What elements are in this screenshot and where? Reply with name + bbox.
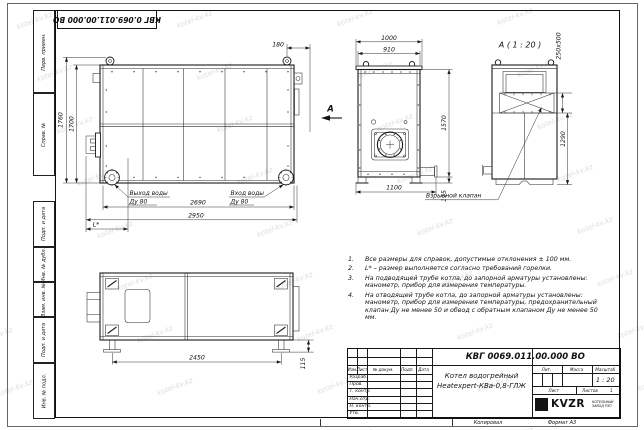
tb-header-list: Лист: [357, 365, 367, 374]
note-number: 4.: [348, 292, 365, 322]
tb-sheets-label: Листов: [576, 386, 604, 394]
tb-divider: [542, 373, 543, 386]
tb-divider: [348, 357, 432, 358]
note-number: 2.: [348, 265, 365, 272]
margin-stamp-perv-primen: Перв. примен.: [33, 10, 55, 93]
note-item: 3. На подводящей трубе котла, до запорно…: [348, 275, 598, 290]
note-text: На отводящей трубе котла, до запорной ар…: [365, 292, 598, 322]
tb-row-prov: Пров.: [348, 381, 367, 388]
note-item: 1. Все размеры для справок, допустимые о…: [348, 256, 598, 263]
tb-divider: [532, 394, 620, 395]
notes-block: 1. Все размеры для справок, допустимые о…: [348, 256, 598, 323]
note-number: 3.: [348, 275, 365, 290]
footer-divider: [320, 419, 321, 426]
margin-stamp-label: Справ. №: [41, 122, 47, 146]
note-text: Все размеры для справок, допустимые откл…: [365, 256, 598, 263]
corner-doc-number-box: КВГ 0.069.011.00.000 ВО: [57, 10, 157, 29]
company-logo-icon: [535, 398, 548, 411]
tb-header-data: Дата: [416, 365, 432, 374]
margin-stamp-label: Подп. и дата: [41, 323, 47, 357]
margin-stamp-podp-data-1: Подп. и дата: [33, 201, 55, 247]
company-name-line2: ЗАВОД РЭП: [592, 404, 613, 408]
tb-mass-label: Масса: [562, 365, 592, 373]
note-item: 2. L* – размер выполняется согласно треб…: [348, 265, 598, 272]
corner-doc-number: КВГ 0.069.011.00.000 ВО: [53, 15, 161, 24]
margin-stamp-label: Взам. инв. №: [41, 283, 47, 317]
tb-lit-label: Лит.: [532, 365, 562, 373]
tb-sheets-value: 1: [604, 386, 619, 394]
company-name: КОТЕЛЬНЫЙ ЗАВОД РЭП: [592, 400, 613, 408]
tb-divider: [400, 349, 401, 417]
tb-divider: [552, 373, 553, 386]
margin-stamp-label: Инв. № дубл.: [41, 247, 47, 281]
tb-header-podp: Подп.: [400, 365, 416, 374]
margin-stamp-label: Подп. и дата: [41, 207, 47, 241]
title-block: КВГ 0069.011.00.000 ВО Изм. Лист № докум…: [347, 348, 621, 419]
note-text: L* – размер выполняется согласно требова…: [365, 265, 598, 272]
tb-scale-value: 1 : 20: [592, 373, 620, 386]
margin-stamp-vzam-inv: Взам. инв. №: [33, 282, 55, 317]
company-logo-text: KVZR: [551, 398, 585, 410]
product-name-line1: Котел водогрейный: [432, 372, 532, 382]
doc-number: КВГ 0069.011.00.000 ВО: [432, 349, 620, 365]
product-name-line2: Heatexpert-КВа-0,8-ГЛЖ: [432, 382, 532, 392]
drawing-sheet: kotel-kv.kz: [0, 0, 644, 430]
note-number: 1.: [348, 256, 365, 263]
note-item: 4. На отводящей трубе котла, до запорной…: [348, 292, 598, 322]
tb-row-utv: Утв.: [348, 410, 367, 417]
margin-stamp-inv-podl: Инв. № подл.: [33, 363, 55, 419]
margin-stamp-podp-data-2: Подп. и дата: [33, 317, 55, 363]
tb-row-razrab: Разраб.: [348, 374, 367, 381]
product-name: Котел водогрейный Heatexpert-КВа-0,8-ГЛЖ: [432, 365, 532, 417]
tb-header-docum: № докум.: [367, 365, 400, 374]
tb-row-nkontr: Н. контр.: [348, 403, 367, 410]
tb-scale-label: Масштаб: [592, 365, 620, 373]
tb-header-izm: Изм.: [348, 365, 357, 374]
copied-label: Копировал: [458, 420, 518, 427]
note-text: На подводящей трубе котла, до запорной а…: [365, 275, 598, 290]
tb-divider: [416, 349, 417, 417]
margin-stamp-sprav-no: Справ. №: [33, 93, 55, 176]
margin-stamp-label: Инв. № подл.: [41, 374, 47, 409]
format-label: Формат А3: [533, 420, 591, 427]
tb-row-tkontr: Т. контр.: [348, 388, 367, 395]
tb-row-nachotd: Нач.отд.: [348, 396, 367, 403]
footer-divider: [452, 419, 453, 426]
margin-stamp-inv-dubl: Инв. № дубл.: [33, 247, 55, 282]
tb-sheet-label: Лист: [532, 386, 577, 394]
margin-stamp-label: Перв. примен.: [41, 33, 47, 71]
